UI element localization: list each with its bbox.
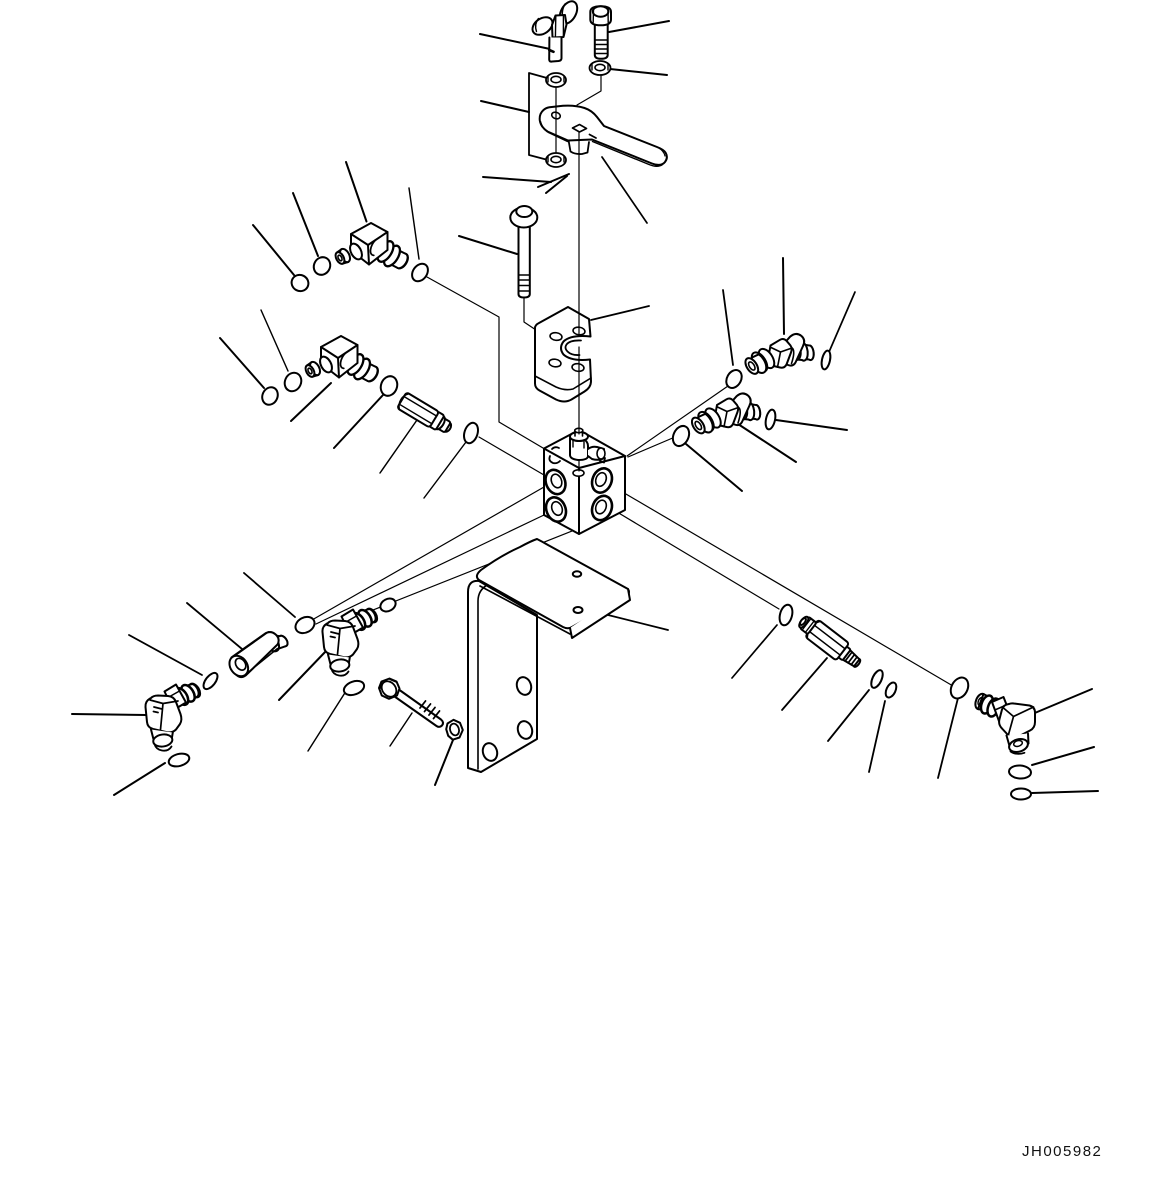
svg-text:JH005982: JH005982 (1022, 1143, 1102, 1160)
